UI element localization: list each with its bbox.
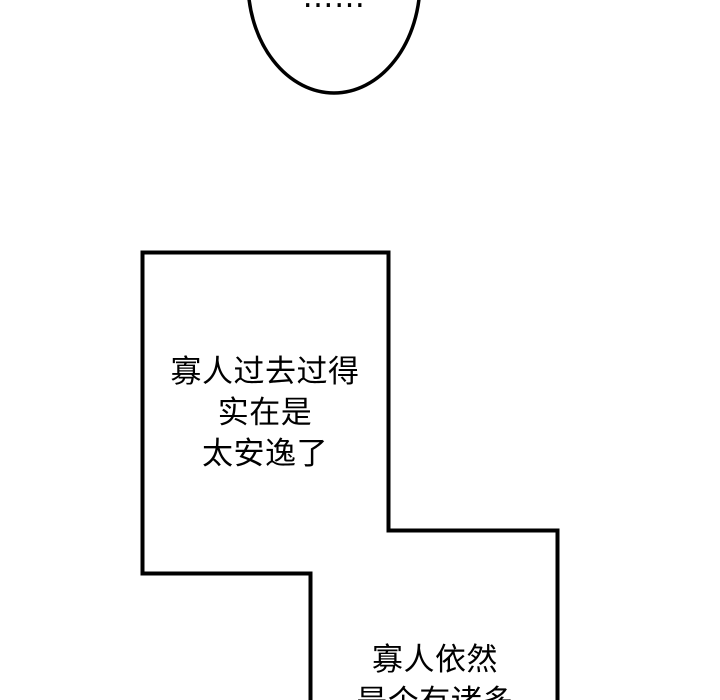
- dialog-still-line-1: 寡人依然: [372, 642, 498, 678]
- dialog-past-line-3: 太安逸了: [202, 436, 328, 472]
- ellipsis-text: ……: [303, 0, 366, 15]
- comic-panel: …… 寡人过去过得 实在是 太安逸了 寡人依然 是个有诸多: [0, 0, 720, 700]
- dialog-past-line-1: 寡人过去过得: [171, 354, 360, 390]
- comic-panel-artwork: …… 寡人过去过得 实在是 太安逸了 寡人依然 是个有诸多: [0, 0, 720, 700]
- merged-speech-balloons: [143, 253, 558, 700]
- dialog-past-line-2: 实在是: [218, 395, 313, 431]
- dialog-still-line-2: 是个有诸多: [356, 684, 514, 700]
